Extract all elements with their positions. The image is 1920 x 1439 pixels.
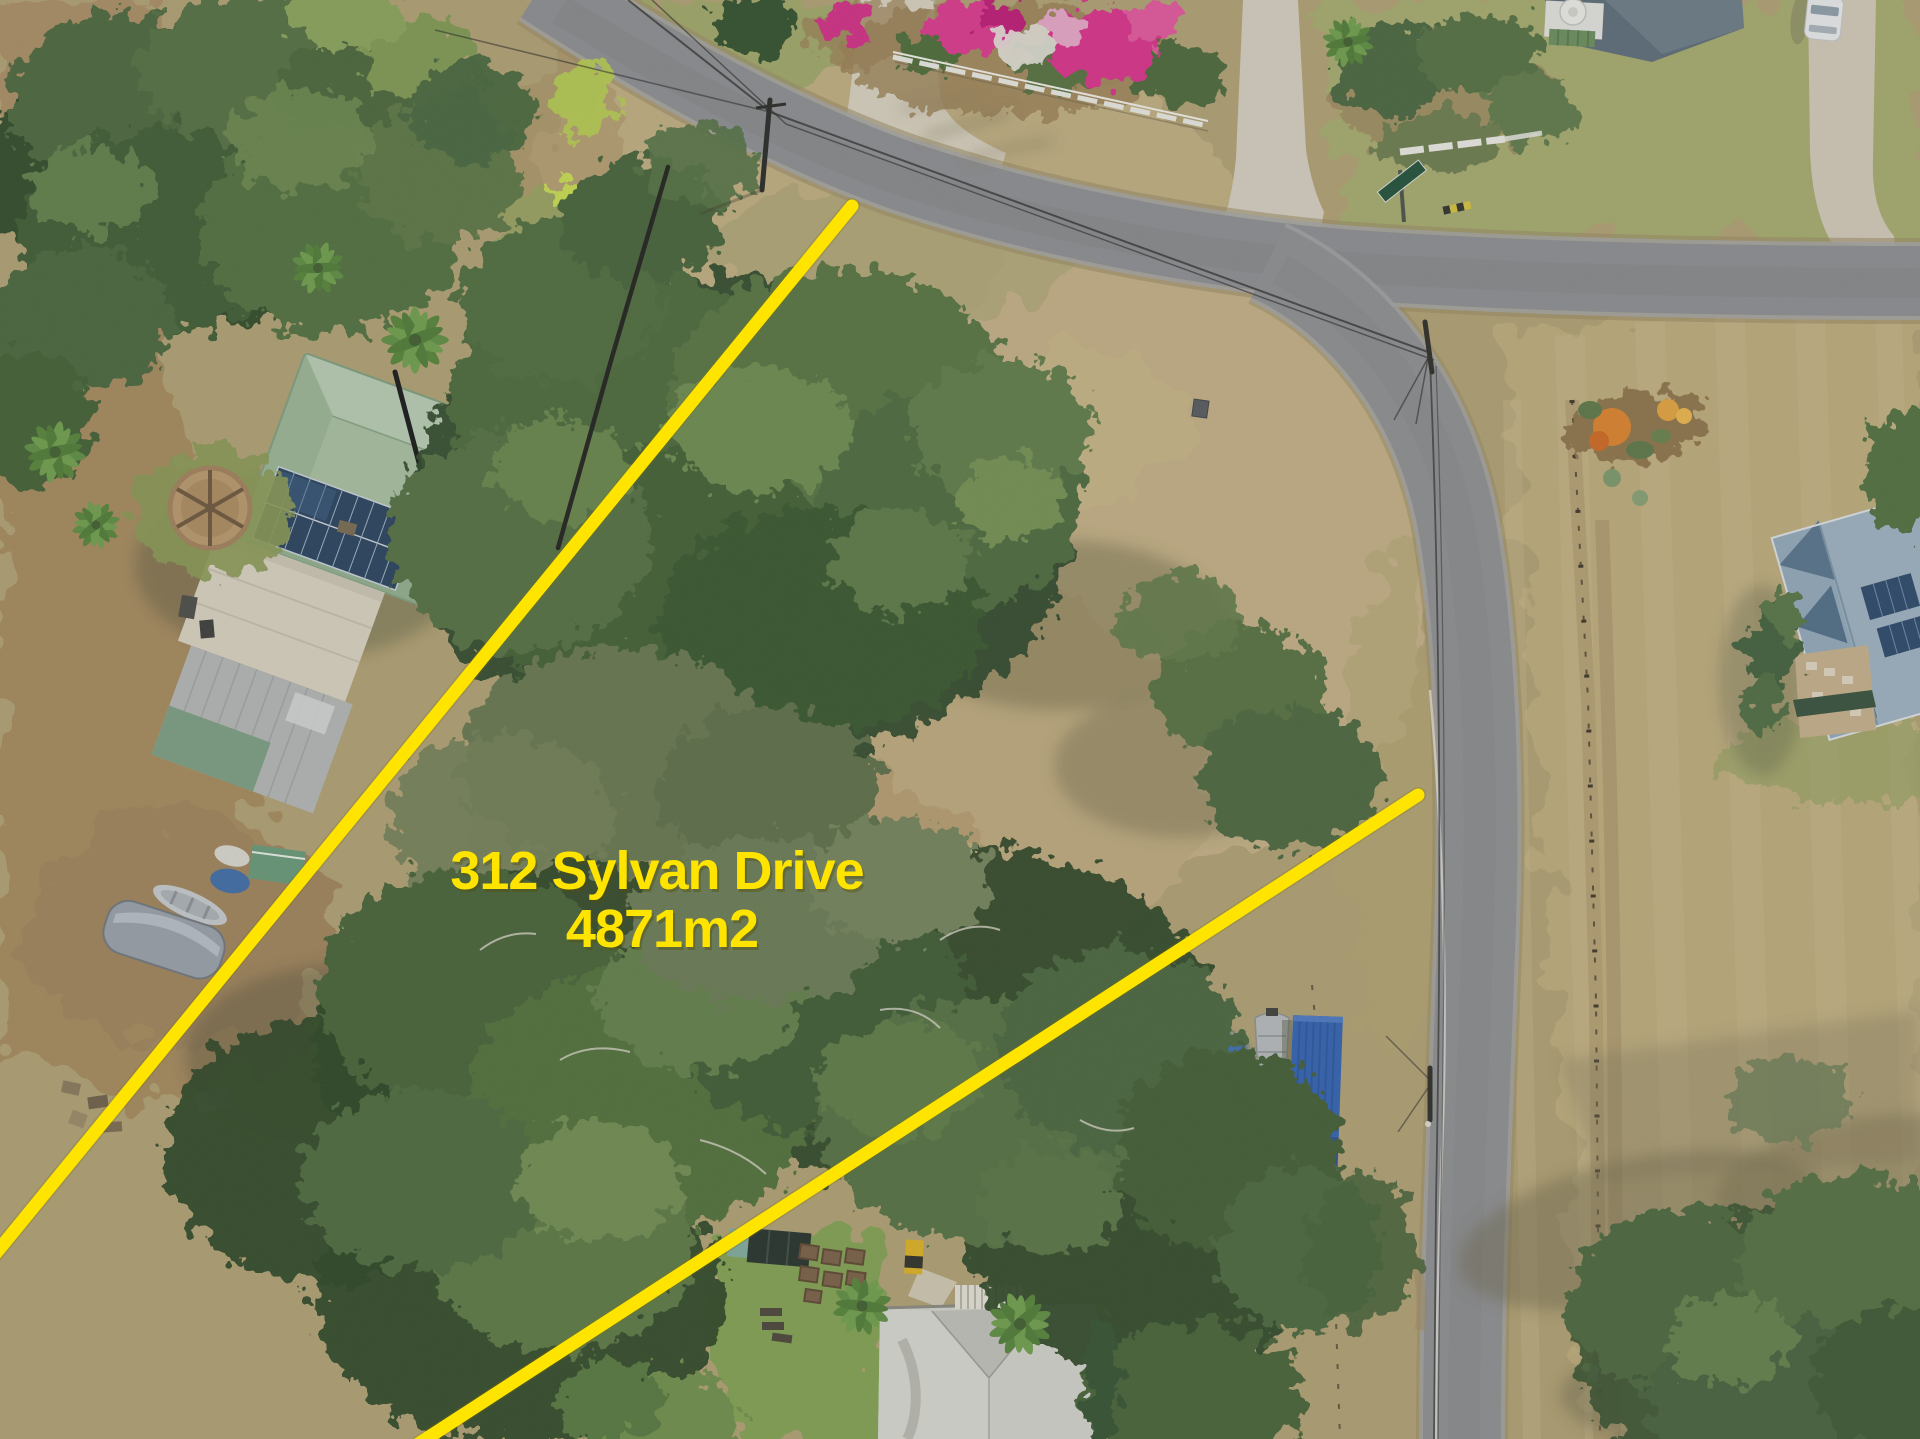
- aerial-photo: 312 Sylvan Drive 4871m2 312 Sylvan Drive…: [0, 0, 1920, 1439]
- area-label: 4871m2: [566, 899, 758, 959]
- grain-light: [0, 0, 1920, 1439]
- aerial-photo-canvas: 312 Sylvan Drive 4871m2 312 Sylvan Drive…: [0, 0, 1920, 1439]
- address-label: 312 Sylvan Drive: [450, 841, 863, 901]
